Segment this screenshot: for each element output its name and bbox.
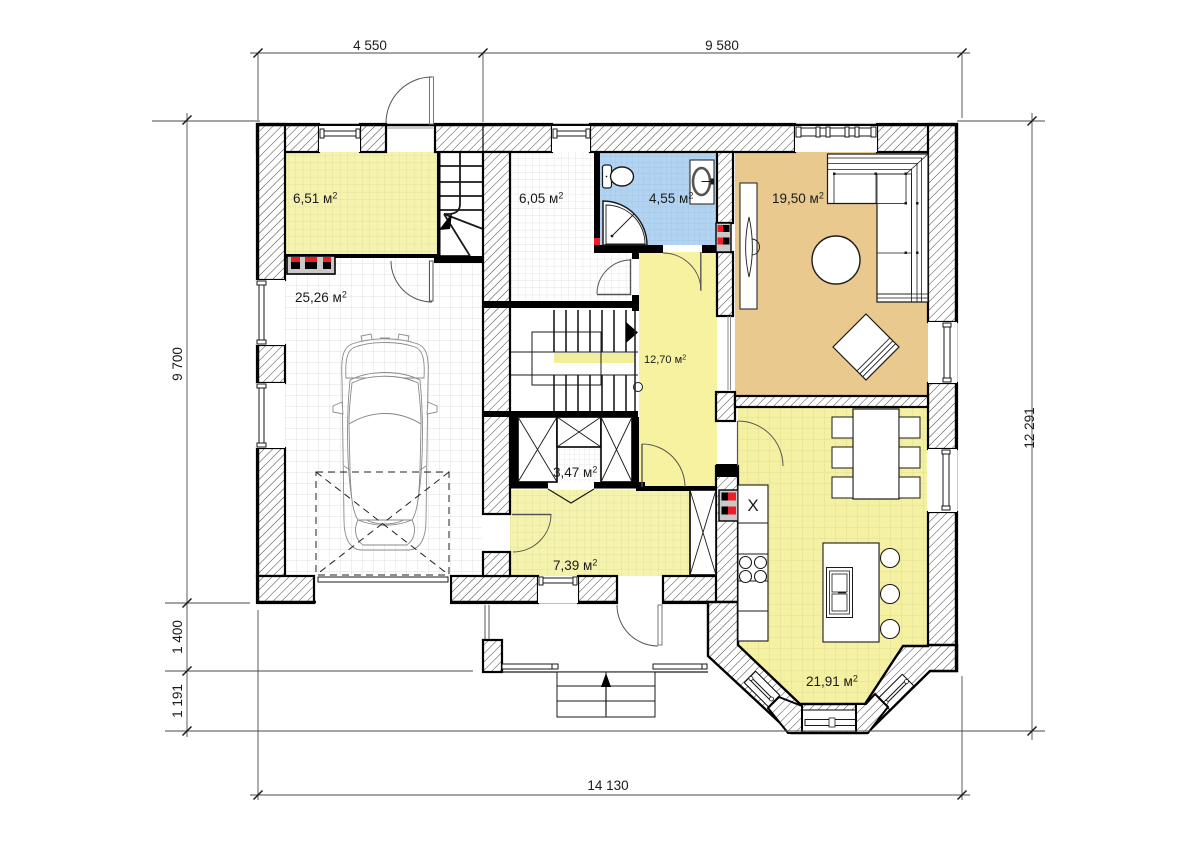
svg-text:6,51 м2: 6,51 м2 xyxy=(293,191,337,207)
svg-text:1 400: 1 400 xyxy=(170,620,185,654)
svg-text:12,70 м2: 12,70 м2 xyxy=(644,353,686,367)
svg-text:9 580: 9 580 xyxy=(705,38,739,53)
svg-text:4,55 м2: 4,55 м2 xyxy=(649,191,693,207)
svg-text:1 191: 1 191 xyxy=(170,684,185,718)
svg-text:12 291: 12 291 xyxy=(1022,407,1037,448)
svg-text:25,26 м2: 25,26 м2 xyxy=(295,290,347,306)
svg-text:7,39 м2: 7,39 м2 xyxy=(553,558,597,574)
svg-text:21,91 м2: 21,91 м2 xyxy=(806,674,858,690)
svg-text:4 550: 4 550 xyxy=(353,38,387,53)
svg-text:9 700: 9 700 xyxy=(170,347,185,381)
svg-text:6,05 м2: 6,05 м2 xyxy=(519,191,563,207)
svg-text:X: X xyxy=(747,496,758,515)
svg-text:19,50 м2: 19,50 м2 xyxy=(772,191,824,207)
svg-text:14 130: 14 130 xyxy=(587,778,628,793)
svg-text:3,47 м2: 3,47 м2 xyxy=(553,465,597,481)
